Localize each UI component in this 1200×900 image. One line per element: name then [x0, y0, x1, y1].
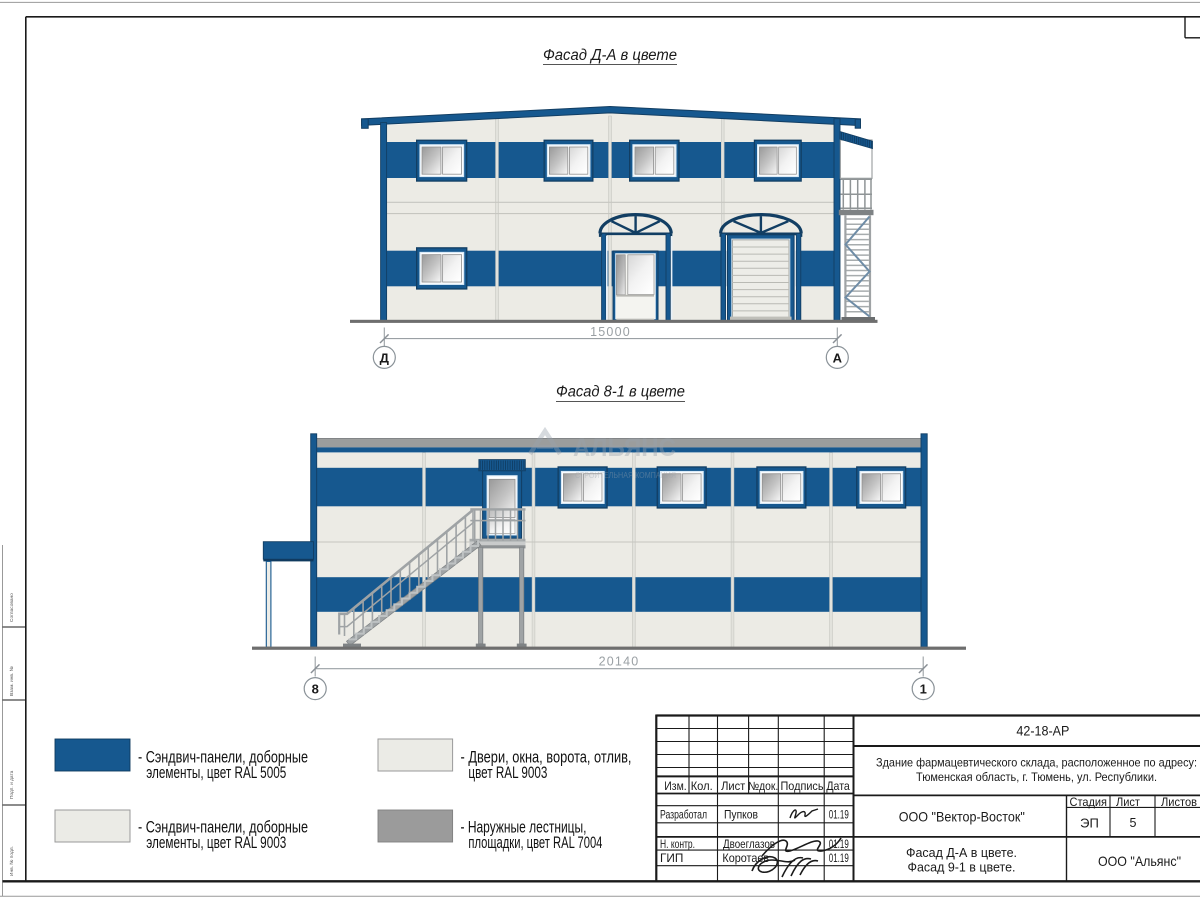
svg-text:ЭП: ЭП	[1080, 816, 1099, 831]
svg-text:Д: Д	[380, 350, 390, 365]
svg-text:Листов: Листов	[1161, 795, 1197, 809]
svg-text:Подпись: Подпись	[781, 779, 824, 793]
svg-text:Кол.: Кол.	[691, 779, 713, 793]
svg-text:Стадия: Стадия	[1070, 795, 1108, 809]
svg-text:Лист: Лист	[721, 779, 746, 793]
svg-text:СТРОИТЕЛЬНАЯ КОМПАНИЯ: СТРОИТЕЛЬНАЯ КОМПАНИЯ	[575, 471, 676, 480]
svg-text:Лист: Лист	[1116, 795, 1141, 809]
svg-text:Двоеглазов: Двоеглазов	[723, 837, 775, 851]
svg-text:А: А	[833, 350, 843, 365]
svg-text:01.19: 01.19	[829, 837, 849, 851]
svg-text:Н. контр.: Н. контр.	[660, 837, 695, 851]
svg-text:20140: 20140	[599, 655, 640, 669]
svg-text:5: 5	[1130, 816, 1137, 830]
svg-text:№док.: №док.	[748, 779, 778, 793]
svg-text:Пупков: Пупков	[724, 808, 758, 822]
svg-text:площадки, цвет RAL 7004: площадки, цвет RAL 7004	[468, 834, 602, 852]
svg-text:Изм.: Изм.	[664, 779, 686, 793]
svg-text:элементы, цвет RAL 9003: элементы, цвет RAL 9003	[146, 834, 286, 852]
svg-text:15000: 15000	[590, 325, 631, 339]
svg-text:Тюменская область, г. Тюмень,: Тюменская область, г. Тюмень, ул. Респуб…	[916, 771, 1157, 784]
svg-text:Подп. и дата: Подп. и дата	[9, 770, 15, 799]
svg-text:Фасад 9-1 в цвете.: Фасад 9-1 в цвете.	[908, 860, 1016, 875]
svg-text:ООО "Альянс": ООО "Альянс"	[1098, 854, 1181, 869]
svg-text:ГИП: ГИП	[660, 851, 683, 865]
svg-text:8: 8	[312, 682, 319, 697]
svg-text:Здание фармацевтического склад: Здание фармацевтического склада, располо…	[876, 757, 1197, 770]
svg-text:Дата: Дата	[826, 779, 850, 793]
svg-text:42-18-АР: 42-18-АР	[1016, 724, 1069, 739]
svg-text:ООО "Вектор-Восток": ООО "Вектор-Восток"	[899, 810, 1025, 825]
svg-text:01.19: 01.19	[829, 851, 849, 865]
svg-text:Согласовано: Согласовано	[9, 593, 15, 622]
svg-text:Фасад Д-А в цвете: Фасад Д-А в цвете	[543, 47, 677, 64]
svg-text:АЛЬЯНС: АЛЬЯНС	[573, 434, 676, 462]
svg-text:Взам. инв. №: Взам. инв. №	[9, 666, 15, 696]
svg-text:Фасад Д-А в цвете.: Фасад Д-А в цвете.	[906, 845, 1017, 860]
svg-text:Фасад 8-1 в цвете: Фасад 8-1 в цвете	[556, 384, 685, 401]
svg-text:1: 1	[920, 682, 927, 697]
svg-text:Разработал: Разработал	[660, 808, 707, 822]
svg-text:Инв. № подл.: Инв. № подл.	[9, 846, 15, 876]
svg-text:элементы, цвет RAL 5005: элементы, цвет RAL 5005	[146, 764, 286, 782]
svg-text:цвет RAL 9003: цвет RAL 9003	[468, 764, 547, 782]
svg-text:01.19: 01.19	[829, 808, 849, 822]
